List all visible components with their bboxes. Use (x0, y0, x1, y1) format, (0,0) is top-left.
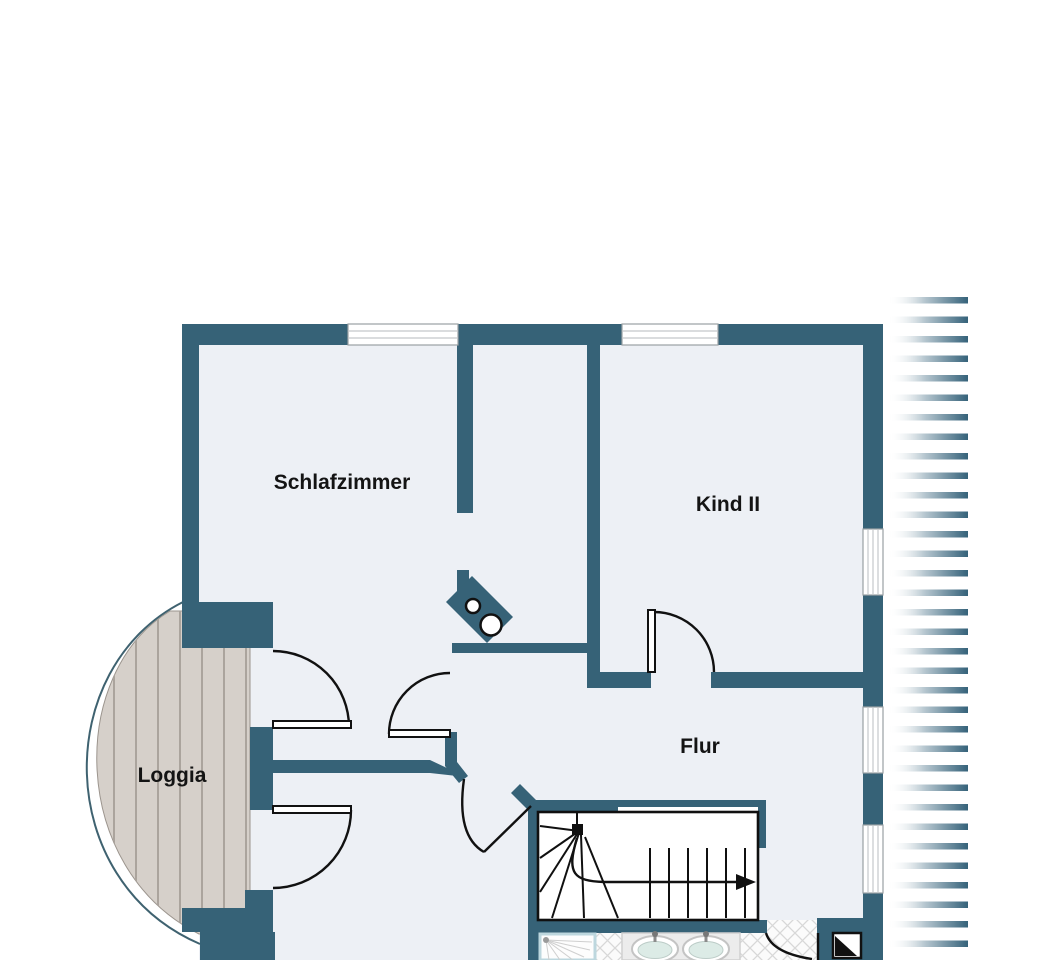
floor-plan-page: Schlafzimmer Kind II Flur Loggia (0, 0, 1060, 960)
window-kind2-north (622, 324, 718, 345)
faucet-icon (652, 931, 658, 937)
faucet-icon (703, 931, 709, 937)
room-label-flur: Flur (680, 735, 720, 758)
shower (540, 934, 595, 960)
wall-east-2 (863, 595, 883, 707)
chimney-flue-large (481, 615, 502, 636)
roof-hatching (888, 297, 968, 960)
entrance-marker (833, 933, 861, 958)
wall-top-middle (458, 324, 622, 345)
shower-head-icon (543, 937, 549, 943)
window-schlafzimmer-north (348, 324, 458, 345)
chimney-flue-small (466, 599, 480, 613)
wall-southwest-block (182, 602, 273, 648)
wall-west (182, 324, 199, 613)
window-flur-east-upper (863, 707, 883, 773)
wall-southwest-step (182, 908, 273, 932)
wall-southwest-bottom (200, 932, 275, 960)
wall-top-left (182, 324, 348, 345)
room-label-kind2: Kind II (696, 493, 760, 516)
room-label-schlafzimmer: Schlafzimmer (274, 471, 411, 494)
wall-kind2-west (587, 345, 600, 672)
room-label-loggia: Loggia (138, 764, 207, 787)
wall-schlafzimmer-east (457, 345, 473, 513)
wall-east-1 (863, 345, 883, 529)
staircase-start-marker (572, 824, 583, 835)
wall-kind2-south-left (587, 672, 651, 688)
wall-kind2-south-right (711, 672, 863, 688)
wall-midroom-south (452, 643, 593, 653)
floor-plan-canvas: Schlafzimmer Kind II Flur Loggia (0, 0, 1060, 960)
window-flur-east-lower (863, 825, 883, 893)
wall-bath-west (528, 933, 540, 960)
wall-top-right (718, 324, 883, 345)
window-kind2-east (863, 529, 883, 595)
wall-stair-south (528, 920, 767, 933)
staircase (538, 812, 758, 920)
wall-east-3 (863, 773, 883, 825)
